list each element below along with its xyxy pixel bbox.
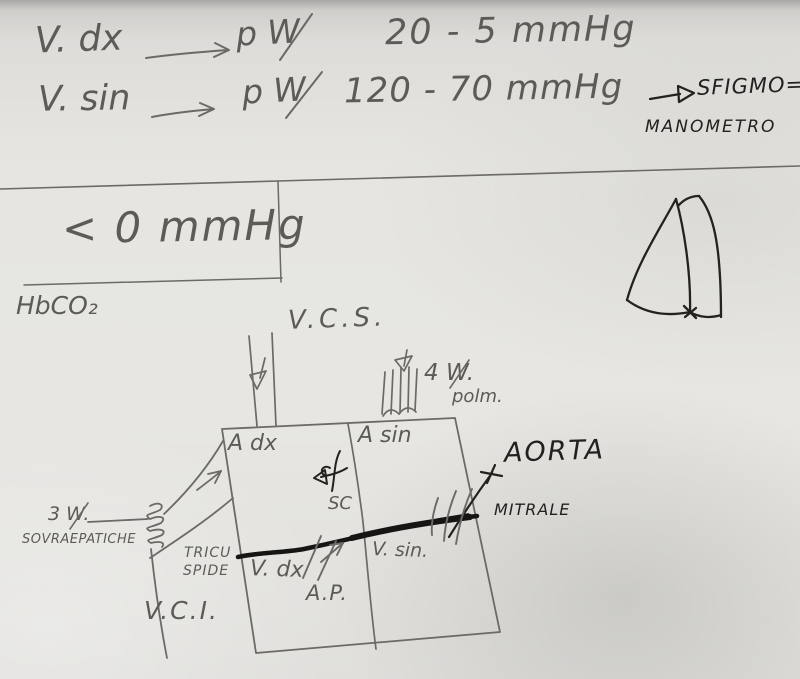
pulmonary-veins-vessel (382, 350, 417, 416)
rv-pressure-value: 20 - 5 mmHg (385, 12, 637, 51)
left-atrium-label: A sin (358, 425, 412, 447)
sphygmomanometer-label-line1: SFIGMO= (697, 74, 800, 99)
mitral-valve-label: MITRALE (494, 502, 570, 518)
right-atrium-label: A dx (228, 433, 277, 455)
aorta-label: AORTA (504, 436, 606, 467)
hepatic-veins-count-label: 3 W. (48, 505, 89, 524)
vci-flow-arcs (150, 441, 233, 558)
page-rule-line (0, 166, 800, 189)
pulmonary-veins-count-label: 4 W. (424, 362, 474, 385)
pulmonary-veins-word-label: polm. (452, 388, 503, 406)
rv-pressure-target: p W (235, 14, 301, 50)
right-ventricle-label: V. dx (250, 558, 304, 582)
pulmonary-artery-marks (303, 536, 343, 580)
row1-arrow-icon (146, 43, 229, 58)
vcs-label: V.C.S. (288, 304, 387, 333)
coronary-sinus-label: SC (328, 495, 352, 513)
left-ventricle-label: V. sin. (372, 540, 429, 561)
venous-pressure-value: < 0 mmHg (62, 204, 307, 250)
hepatic-veins-word-label: SOVRAEPATICHE (22, 533, 136, 546)
rv-pressure-label: V. dx (34, 20, 123, 59)
valve-plane-line (238, 516, 477, 557)
molecule-label: HbCO₂ (16, 293, 98, 318)
row2-arrow-icon (152, 103, 214, 117)
valve-leaflet-sketch (627, 196, 721, 318)
vci-label: V.C.I. (144, 598, 219, 623)
tricuspid-label-line2: SPIDE (183, 564, 229, 578)
lv-pressure-label: V. sin (38, 81, 131, 118)
mitral-valve-marks (432, 489, 472, 544)
coronary-sinus-arrow (314, 451, 347, 491)
lv-pressure-value: 120 - 70 mmHg (344, 70, 624, 109)
septum-line (348, 424, 376, 649)
vcs-vessel (249, 333, 276, 426)
lv-pressure-target: p W (241, 72, 307, 108)
sfigmo-arrow-icon (650, 86, 694, 102)
sphygmomanometer-label-line2: MANOMETRO (645, 119, 776, 136)
handwritten-note-page: V. dx p W 20 - 5 mmHg V. sin p W 120 - 7… (0, 0, 800, 679)
pulmonary-artery-label: A.P. (306, 583, 348, 604)
tricuspid-label-line1: TRICU (184, 546, 231, 560)
